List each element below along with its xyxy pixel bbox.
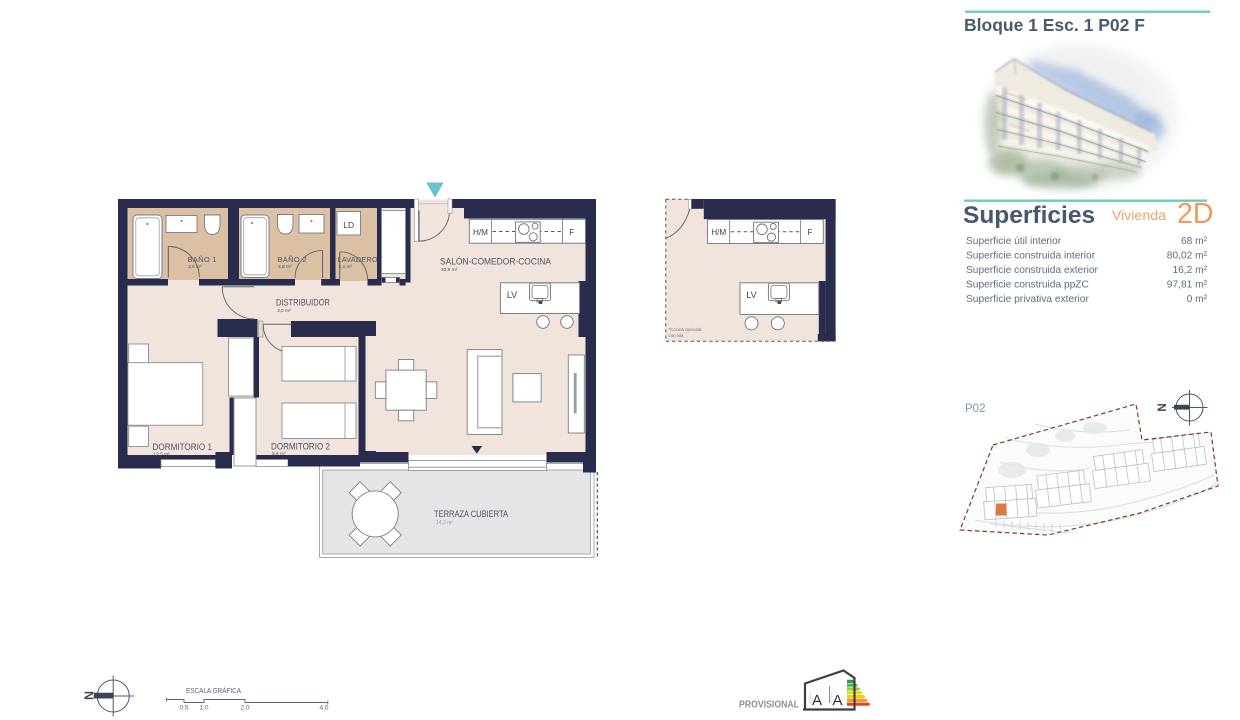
svg-text:32,9 m²: 32,9 m² bbox=[441, 267, 458, 273]
svg-text:*Cocina opcional: *Cocina opcional bbox=[669, 327, 702, 332]
svg-text:14,3 m²: 14,3 m² bbox=[436, 520, 453, 526]
svg-text:9,6 m²: 9,6 m² bbox=[272, 451, 286, 457]
svg-text:1.0: 1.0 bbox=[199, 705, 208, 712]
svg-text:TERRAZA CUBIERTA: TERRAZA CUBIERTA bbox=[434, 509, 508, 519]
svg-text:2D: 2D bbox=[1177, 198, 1213, 230]
svg-text:80,02 m²: 80,02 m² bbox=[1167, 251, 1208, 262]
svg-text:F: F bbox=[807, 228, 812, 237]
svg-text:LD: LD bbox=[343, 220, 354, 230]
svg-text:Superficie útil interior: Superficie útil interior bbox=[966, 236, 1062, 247]
svg-text:BAÑO 2: BAÑO 2 bbox=[278, 255, 307, 264]
svg-text:16,2 m²: 16,2 m² bbox=[1172, 265, 1207, 276]
svg-text:N: N bbox=[1157, 403, 1169, 411]
svg-text:P02: P02 bbox=[965, 403, 985, 415]
svg-text:F: F bbox=[569, 228, 574, 237]
svg-text:Bloque 1 Esc. 1 P02 F: Bloque 1 Esc. 1 P02 F bbox=[964, 15, 1145, 35]
svg-text:DISTRIBUIDOR: DISTRIBUIDOR bbox=[276, 298, 330, 308]
svg-text:DORMITORIO 1: DORMITORIO 1 bbox=[153, 442, 213, 452]
svg-text:Vivienda: Vivienda bbox=[1112, 208, 1166, 224]
svg-text:DORMITORIO 2: DORMITORIO 2 bbox=[271, 442, 330, 452]
svg-text:BAÑO 1: BAÑO 1 bbox=[188, 255, 217, 264]
svg-text:con isla: con isla bbox=[669, 333, 684, 338]
svg-text:H/M: H/M bbox=[473, 228, 488, 237]
svg-text:A: A bbox=[833, 692, 843, 709]
svg-text:2.0: 2.0 bbox=[240, 705, 249, 712]
svg-text:3,0 m²: 3,0 m² bbox=[277, 308, 291, 314]
svg-text:PROVISIONAL: PROVISIONAL bbox=[739, 700, 799, 711]
svg-text:LV: LV bbox=[746, 290, 756, 300]
svg-text:N: N bbox=[83, 691, 97, 700]
svg-text:H/M: H/M bbox=[711, 228, 726, 237]
svg-text:3,8 m²: 3,8 m² bbox=[278, 264, 292, 270]
svg-text:0 m²: 0 m² bbox=[1187, 294, 1208, 305]
svg-text:Superficie construida interior: Superficie construida interior bbox=[966, 251, 1096, 262]
svg-text:Superficies: Superficies bbox=[963, 202, 1095, 229]
svg-text:Superficie construida ppZC: Superficie construida ppZC bbox=[966, 280, 1089, 291]
svg-text:12,5 m²: 12,5 m² bbox=[154, 452, 171, 458]
svg-text:97,81 m²: 97,81 m² bbox=[1167, 280, 1208, 291]
svg-text:68 m²: 68 m² bbox=[1181, 236, 1208, 247]
svg-text:2,2 m²: 2,2 m² bbox=[339, 264, 353, 270]
svg-text:Superficie privativa exterior: Superficie privativa exterior bbox=[966, 294, 1089, 305]
svg-text:A: A bbox=[812, 692, 822, 709]
svg-text:LV: LV bbox=[507, 290, 517, 300]
svg-text:SALÓN-COMEDOR-COCINA: SALÓN-COMEDOR-COCINA bbox=[440, 257, 551, 267]
svg-text:Superficie construida exterior: Superficie construida exterior bbox=[966, 265, 1099, 276]
svg-text:LAVADERO: LAVADERO bbox=[338, 255, 378, 264]
svg-text:ESCALA GRÁFICA: ESCALA GRÁFICA bbox=[186, 686, 241, 695]
svg-text:4.0: 4.0 bbox=[319, 705, 328, 712]
svg-text:3,6 m²: 3,6 m² bbox=[188, 264, 202, 270]
svg-text:0.5: 0.5 bbox=[179, 705, 188, 712]
